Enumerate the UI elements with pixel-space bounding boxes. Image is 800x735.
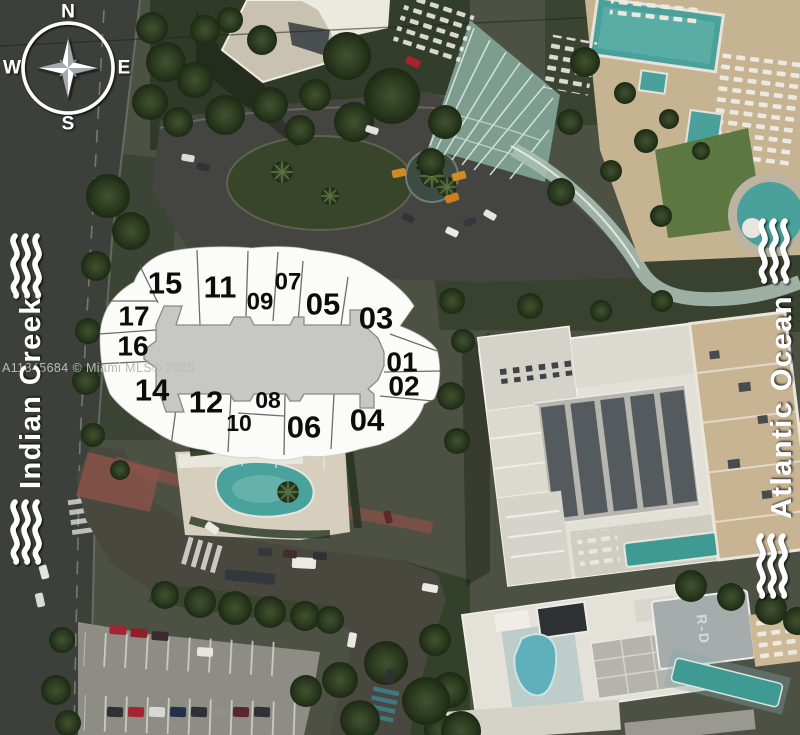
tree: [659, 109, 679, 129]
tree: [428, 105, 462, 139]
tree: [323, 32, 371, 80]
vehicle: [197, 647, 214, 657]
unit-number-10: 10: [226, 410, 252, 436]
vehicle: [283, 549, 298, 558]
tree: [334, 102, 374, 142]
unit-number-14: 14: [135, 373, 170, 408]
tree: [717, 583, 745, 611]
tree: [417, 148, 445, 176]
tree: [439, 288, 465, 314]
ocean-building-roof: [478, 300, 800, 586]
tree: [55, 710, 81, 735]
round-pool: [737, 182, 800, 248]
tree: [86, 174, 130, 218]
tree: [205, 95, 245, 135]
vehicle: [149, 707, 165, 718]
vehicle: [233, 707, 249, 718]
tree: [600, 160, 622, 182]
unit-number-15: 15: [148, 266, 182, 301]
tree: [650, 205, 672, 227]
aerial-map-screenshot: R-D: [0, 0, 800, 735]
vehicle: [313, 551, 328, 560]
tree: [163, 107, 193, 137]
tree: [254, 596, 286, 628]
tree: [437, 382, 465, 410]
indian-creek-label: Indian Creek: [15, 297, 47, 489]
vehicle: [212, 707, 228, 718]
tree: [110, 460, 130, 480]
tree: [218, 591, 252, 625]
tree: [151, 581, 179, 609]
tree: [81, 251, 111, 281]
tree: [41, 675, 71, 705]
tree: [184, 586, 216, 618]
tree: [614, 82, 636, 104]
tree: [75, 318, 101, 344]
aerial-scene: R-D: [0, 0, 800, 735]
vehicle: [107, 707, 123, 718]
unit-number-07: 07: [275, 269, 302, 296]
tree: [49, 627, 75, 653]
unit-number-02: 02: [388, 371, 419, 402]
tree: [590, 300, 612, 322]
vehicle: [258, 547, 273, 556]
vehicle: [130, 628, 148, 638]
vehicle: [109, 625, 127, 635]
tree: [247, 25, 277, 55]
tree: [517, 293, 543, 319]
tree: [444, 428, 470, 454]
atlantic-ocean-label: Atlantic Ocean: [766, 295, 798, 519]
tree: [290, 601, 320, 631]
tree: [217, 7, 243, 33]
tree: [290, 675, 322, 707]
tree: [81, 423, 105, 447]
unit-number-11: 11: [204, 270, 237, 305]
tree: [136, 12, 168, 44]
tree: [692, 142, 710, 160]
tree: [285, 115, 315, 145]
tree: [132, 84, 168, 120]
unit-number-05: 05: [306, 287, 340, 322]
tree: [557, 109, 583, 135]
unit-number-09: 09: [247, 289, 274, 316]
tree: [547, 178, 575, 206]
tree: [675, 570, 707, 602]
tree: [402, 677, 450, 725]
vehicle: [191, 707, 207, 718]
unit-number-03: 03: [359, 301, 393, 336]
tree: [634, 129, 658, 153]
vehicle: [254, 707, 270, 718]
vehicle: [151, 631, 169, 641]
unit-number-17: 17: [118, 301, 149, 332]
tree: [570, 47, 600, 77]
tree: [112, 212, 150, 250]
tree: [252, 87, 288, 123]
tree: [316, 606, 344, 634]
unit-number-16: 16: [117, 331, 148, 362]
tree: [419, 624, 451, 656]
compass-label-s: S: [62, 114, 75, 135]
compass-label-e: E: [118, 58, 131, 79]
tree: [177, 62, 213, 98]
unit-number-04: 04: [350, 403, 385, 438]
unit-number-08: 08: [255, 387, 281, 413]
vehicle: [292, 557, 317, 569]
unit-number-06: 06: [287, 410, 321, 445]
compass-label-n: N: [61, 2, 75, 23]
tree: [190, 15, 220, 45]
tree: [651, 290, 673, 312]
tree: [322, 662, 358, 698]
unit-number-12: 12: [189, 385, 223, 420]
tree: [451, 329, 475, 353]
tree: [299, 79, 331, 111]
compass-label-w: W: [3, 58, 21, 79]
vehicle: [170, 707, 186, 718]
vehicle: [128, 707, 144, 718]
